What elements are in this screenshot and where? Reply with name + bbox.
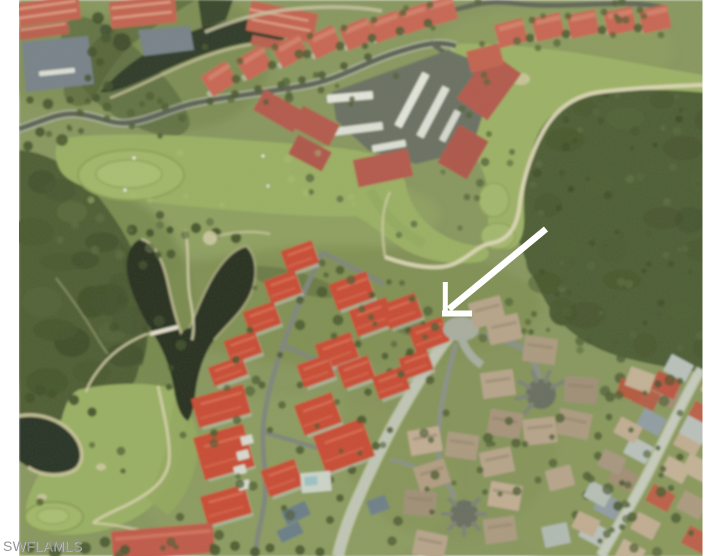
svg-text:SWFLAMLS: SWFLAMLS (3, 538, 82, 554)
